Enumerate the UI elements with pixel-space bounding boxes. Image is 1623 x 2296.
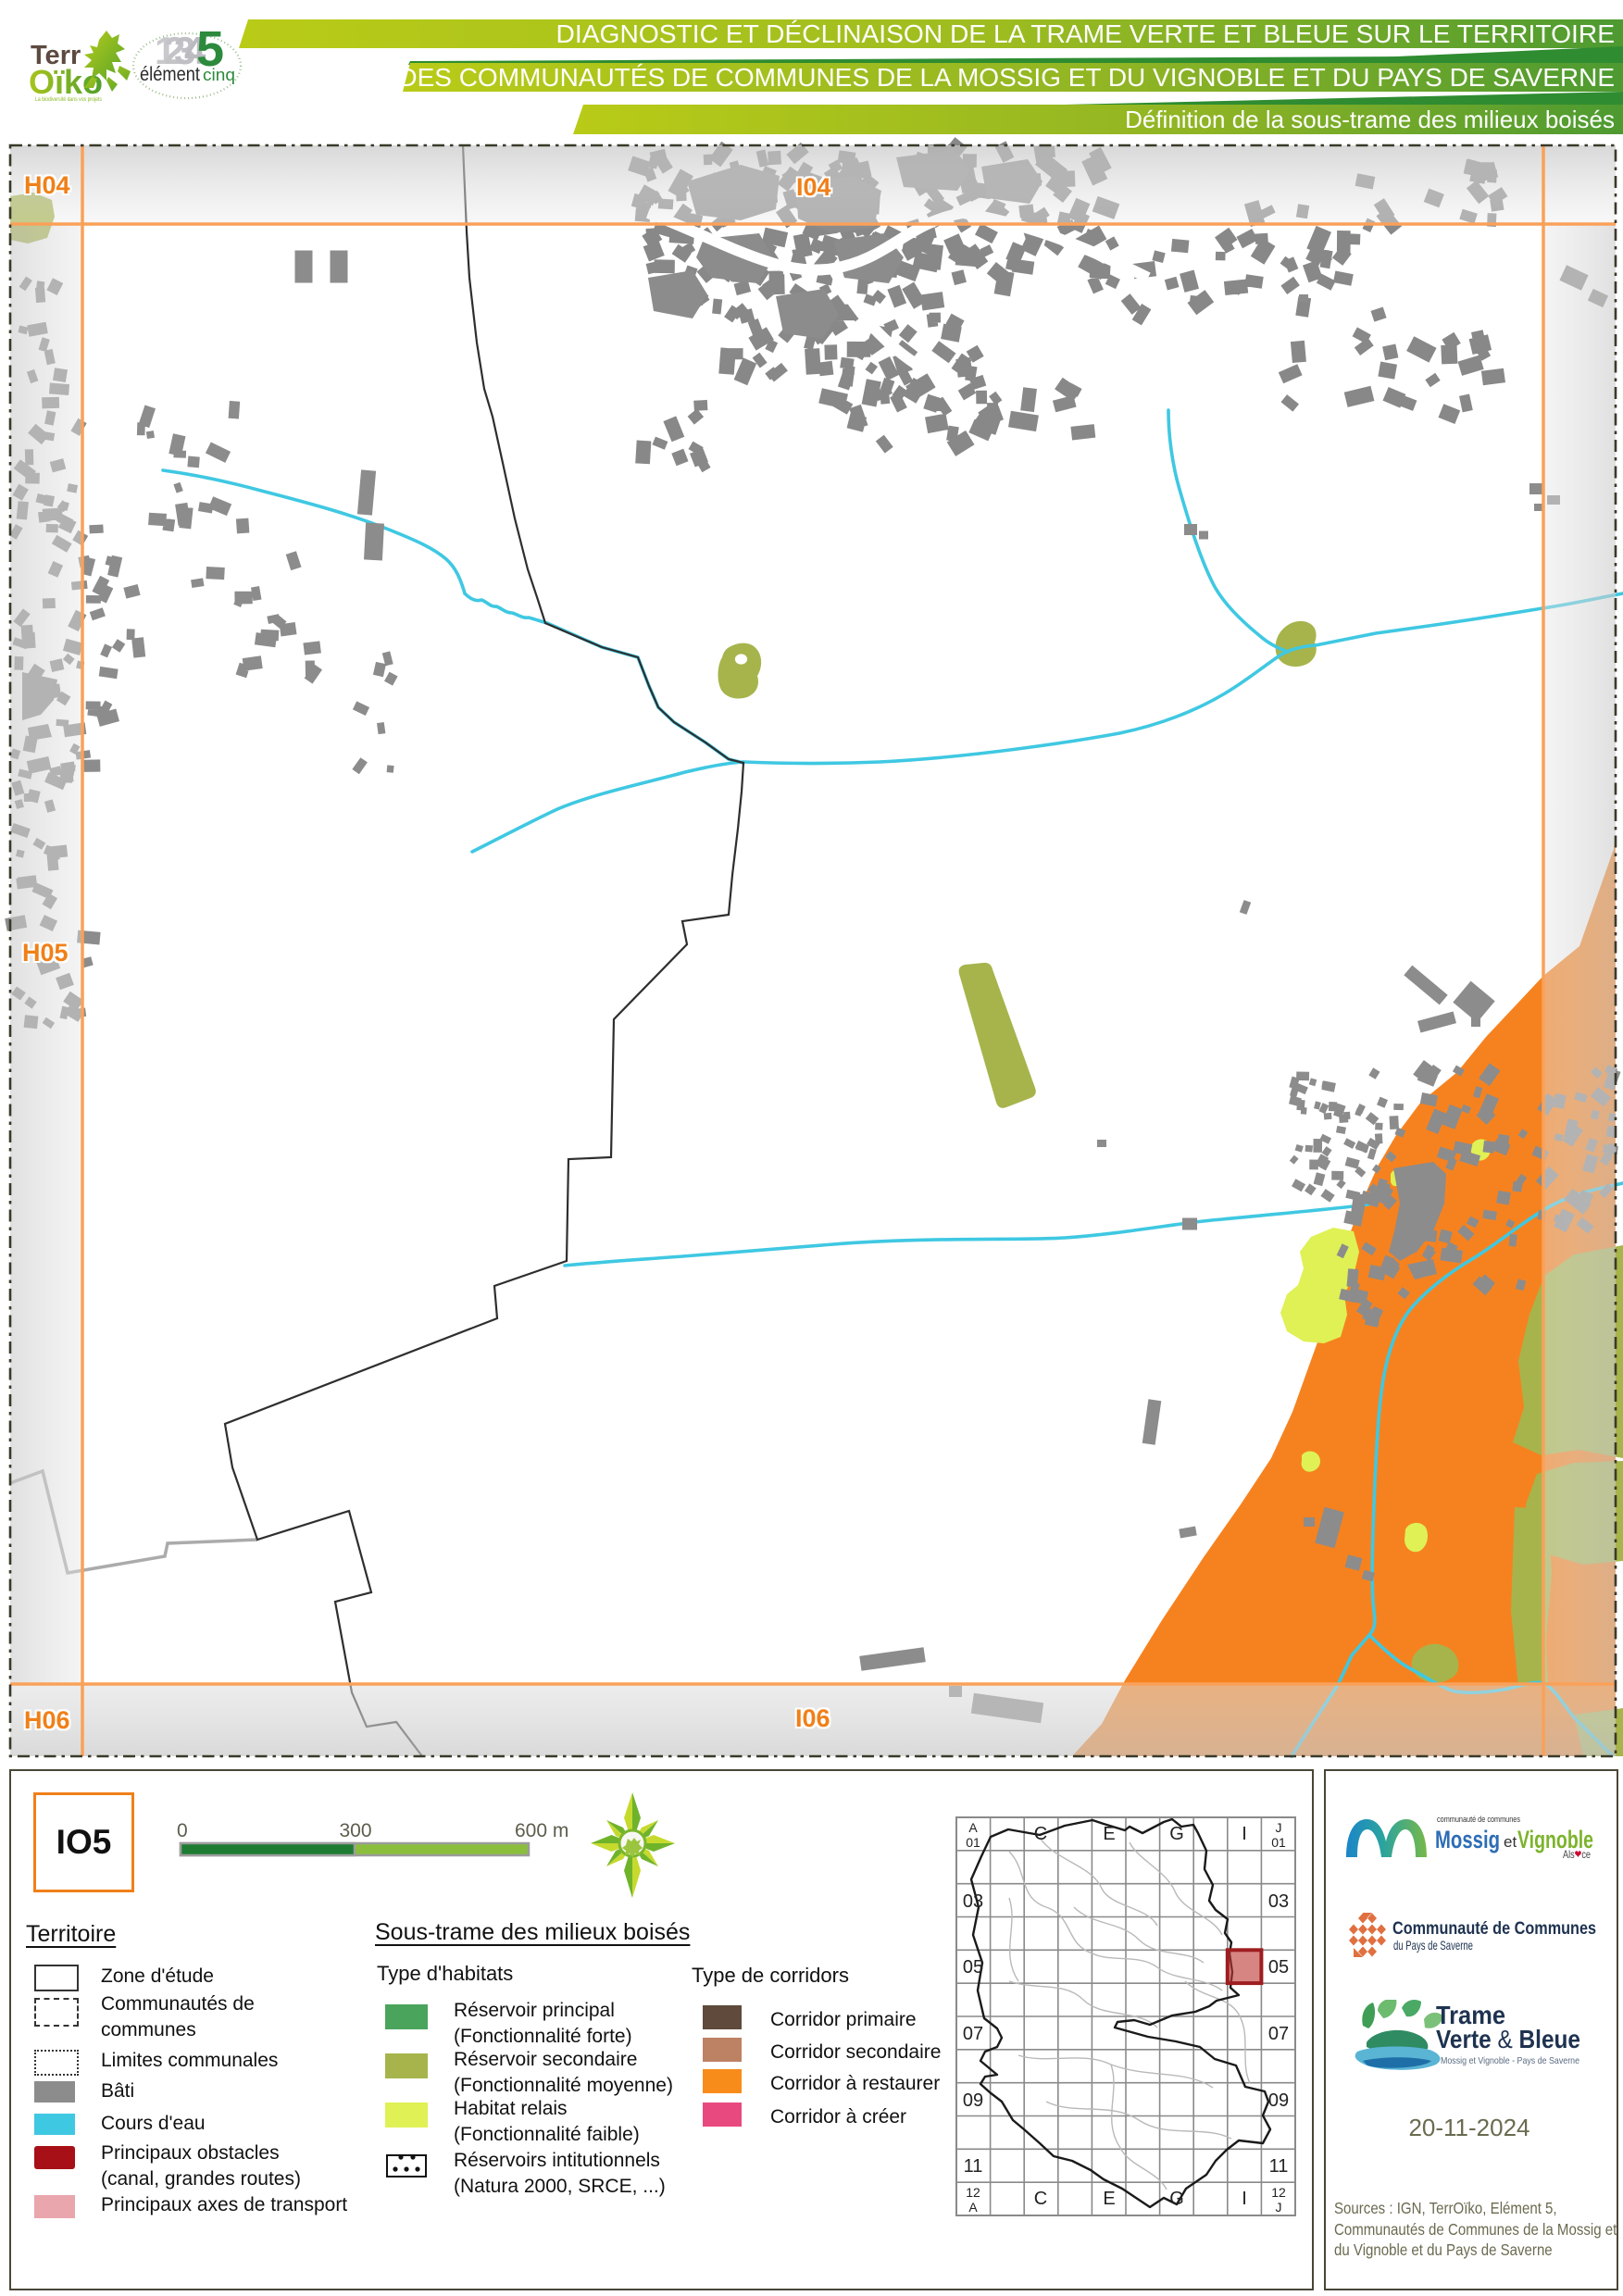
svg-text:05: 05 [1268,1957,1289,1978]
svg-text:C: C [1034,1824,1047,1844]
svg-text:du Pays de Saverne: du Pays de Saverne [1393,1938,1473,1953]
svg-text:I: I [1242,1824,1247,1844]
svg-text:Mossig: Mossig [1435,1826,1500,1853]
svg-text:G: G [1169,2189,1184,2209]
svg-text:Als❤ce: Als❤ce [1563,1848,1591,1861]
svg-text:G: G [1169,1824,1184,1844]
svg-text:600 m: 600 m [515,1820,568,1841]
svg-text:12: 12 [966,2185,980,2200]
svg-text:A: A [968,1820,978,1835]
svg-text:J: J [1276,1820,1282,1835]
svg-text:C: C [1034,2189,1047,2209]
svg-text:12: 12 [1271,2185,1286,2200]
svg-text:et: et [1504,1833,1517,1851]
svg-text:I: I [1242,2189,1247,2209]
svg-text:07: 07 [963,2024,983,2044]
svg-text:11: 11 [1269,2156,1289,2177]
svg-text:07: 07 [1268,2024,1289,2044]
svg-text:Communauté de Communes: Communauté de Communes [1392,1919,1596,1939]
svg-text:01: 01 [966,1835,980,1850]
svg-text:Verte & Bleue: Verte & Bleue [1436,2025,1580,2053]
svg-text:Mossig et Vignoble - Pays de S: Mossig et Vignoble - Pays de Saverne [1441,2055,1579,2066]
svg-text:300: 300 [339,1820,371,1841]
svg-text:E: E [1103,1824,1115,1844]
svg-text:03: 03 [963,1891,983,1912]
svg-text:J: J [1276,2200,1282,2215]
svg-text:01: 01 [1271,1835,1286,1850]
svg-text:09: 09 [1268,2090,1289,2111]
svg-text:0: 0 [177,1820,188,1841]
svg-text:03: 03 [1268,1891,1289,1912]
svg-text:E: E [1103,2189,1115,2209]
svg-text:communauté de communes: communauté de communes [1437,1815,1520,1825]
svg-text:09: 09 [963,2090,983,2111]
svg-text:05: 05 [963,1957,983,1978]
svg-text:A: A [968,2200,978,2215]
svg-text:11: 11 [964,2156,983,2177]
